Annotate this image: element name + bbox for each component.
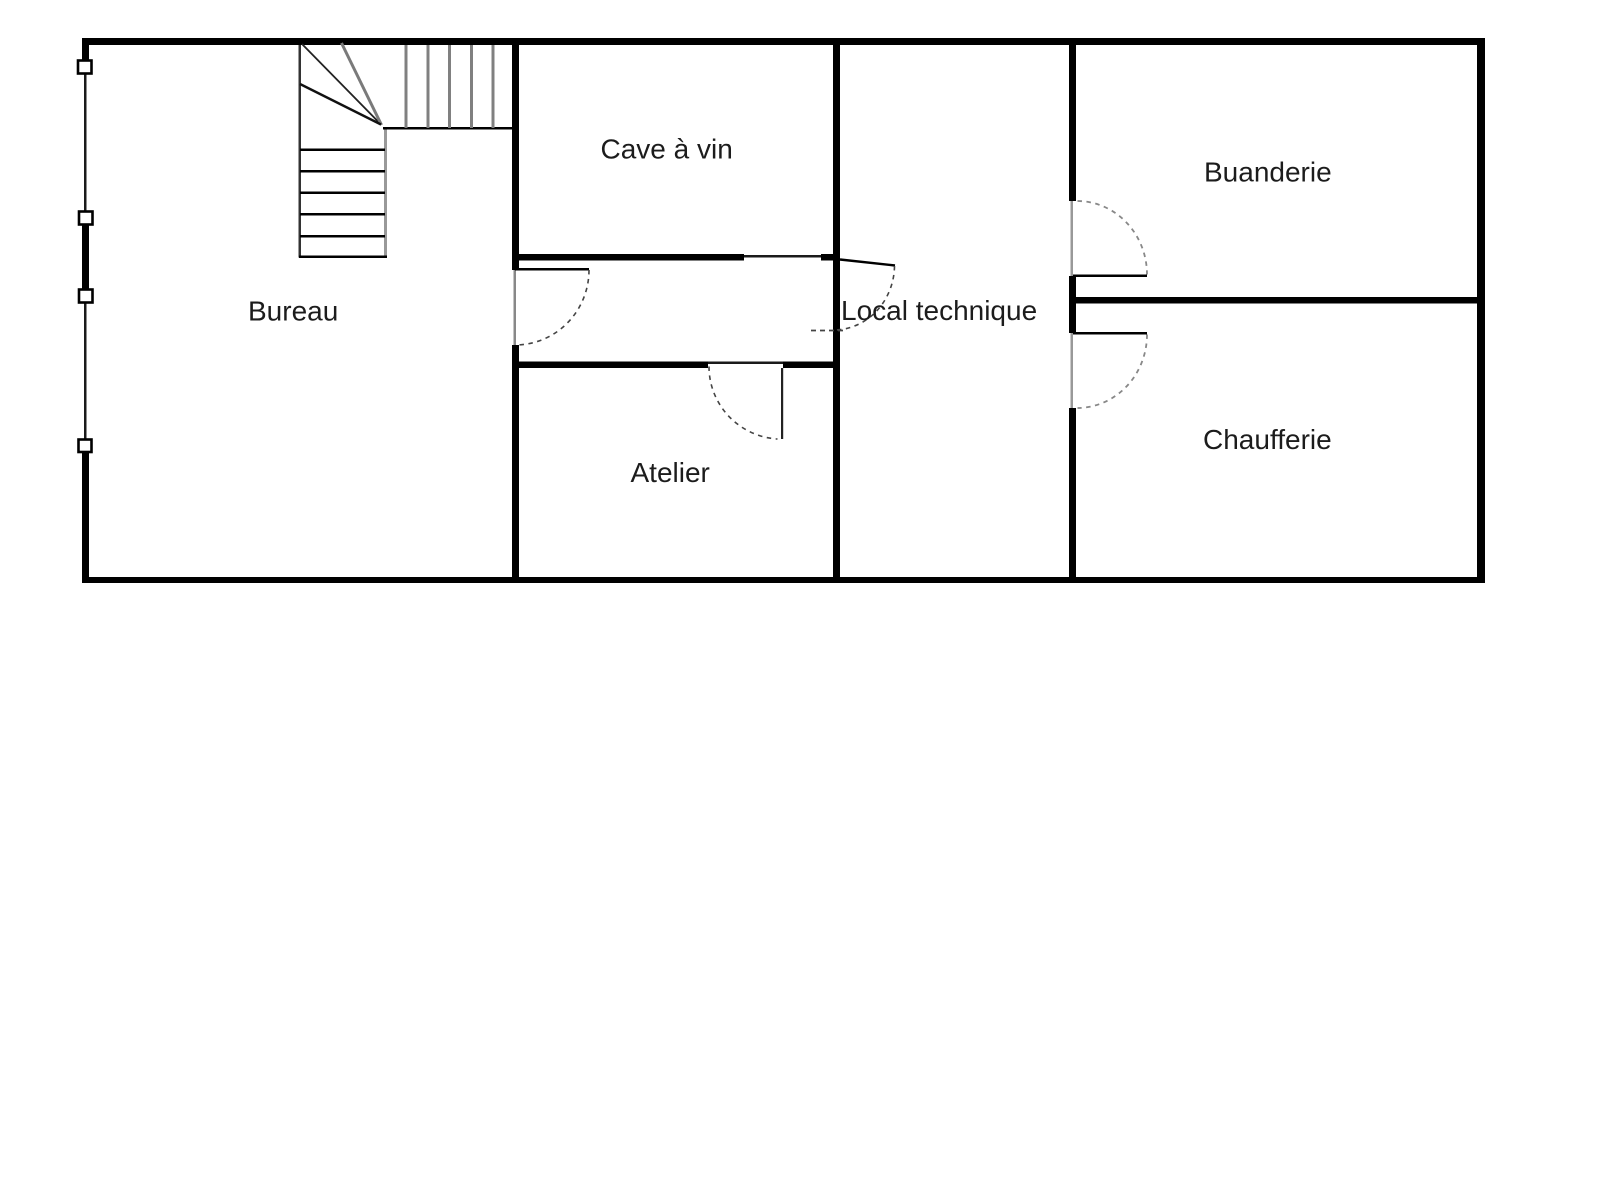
svg-text:Bureau: Bureau — [248, 296, 338, 327]
svg-text:Buanderie: Buanderie — [1204, 157, 1332, 188]
svg-text:Chaufferie: Chaufferie — [1203, 424, 1332, 455]
svg-text:Atelier: Atelier — [631, 457, 710, 488]
svg-text:Local technique: Local technique — [841, 295, 1037, 326]
svg-text:Cave à vin: Cave à vin — [601, 134, 733, 165]
